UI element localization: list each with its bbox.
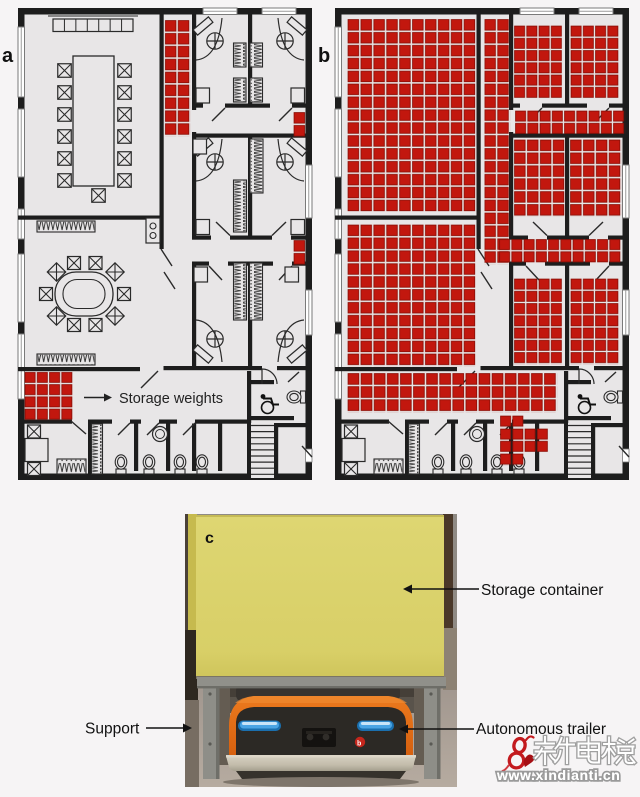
svg-text:a: a (2, 45, 14, 67)
svg-text:b: b (357, 741, 361, 748)
svg-text:c: c (205, 530, 214, 547)
svg-text:www.xindianti.cn: www.xindianti.cn (496, 767, 620, 783)
svg-text:b: b (318, 45, 330, 67)
svg-text:Support: Support (85, 721, 140, 738)
svg-text:Storage weights: Storage weights (119, 391, 223, 407)
svg-text:Storage container: Storage container (481, 582, 603, 599)
